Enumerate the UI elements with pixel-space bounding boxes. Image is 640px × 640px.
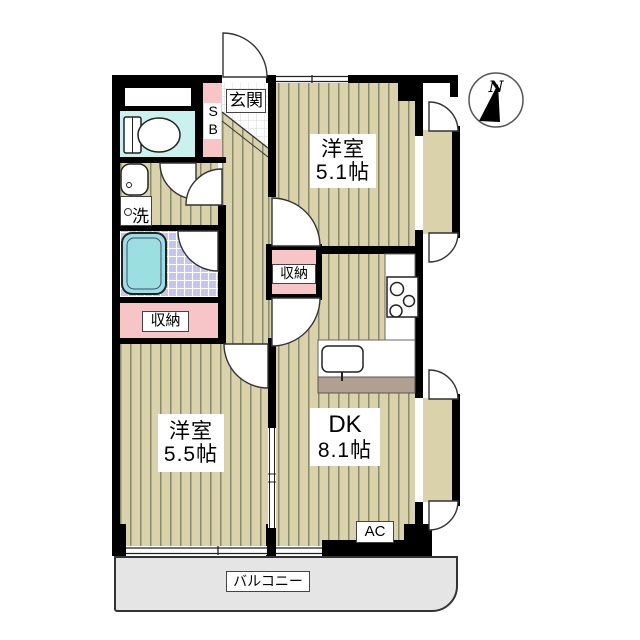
dk-label: DK 8.1帖 — [310, 408, 380, 466]
storage-left-label: 収納 — [142, 311, 189, 332]
stove — [387, 277, 418, 317]
window — [276, 546, 322, 555]
casement-window-arc — [429, 102, 458, 131]
storage-center-label: 収納 — [272, 264, 316, 284]
casement-window-arc — [429, 233, 458, 262]
casement-window-arc — [429, 370, 458, 399]
casement-window-arc — [429, 501, 458, 530]
western-room-2-label: 洋室 5.5帖 — [158, 414, 224, 472]
entrance-door-arc — [223, 33, 267, 77]
western-room-1-label: 洋室 5.1帖 — [310, 134, 376, 188]
bathtub — [122, 233, 166, 294]
toilet — [124, 117, 180, 153]
plan-overlay: N — [0, 0, 640, 640]
shoe-box-label: SB — [204, 103, 221, 139]
sliding-door-lines — [268, 428, 276, 528]
wash-basin — [121, 164, 148, 195]
balcony-label: バルコニー — [226, 571, 310, 592]
ac-label: AC — [356, 521, 394, 543]
compass-north-label: N — [488, 77, 505, 96]
room1-door-arc — [272, 198, 320, 246]
window — [276, 75, 348, 83]
dk-door-arc — [272, 298, 320, 346]
entrance-label: 玄関 — [226, 89, 266, 113]
washer-label: 洗 — [132, 202, 149, 227]
window — [126, 546, 267, 555]
bathroom-door-arc — [178, 231, 218, 271]
washing-machine: 洗 — [120, 196, 152, 226]
washer-drain-icon — [124, 208, 132, 216]
room2-door-arc — [224, 344, 268, 388]
compass-icon: N — [469, 73, 523, 127]
floor-plan: N 玄関 SB 洗 収納 収納 洋室 5.1帖 洋室 5.5帖 DK 8.1帖 … — [0, 0, 640, 640]
